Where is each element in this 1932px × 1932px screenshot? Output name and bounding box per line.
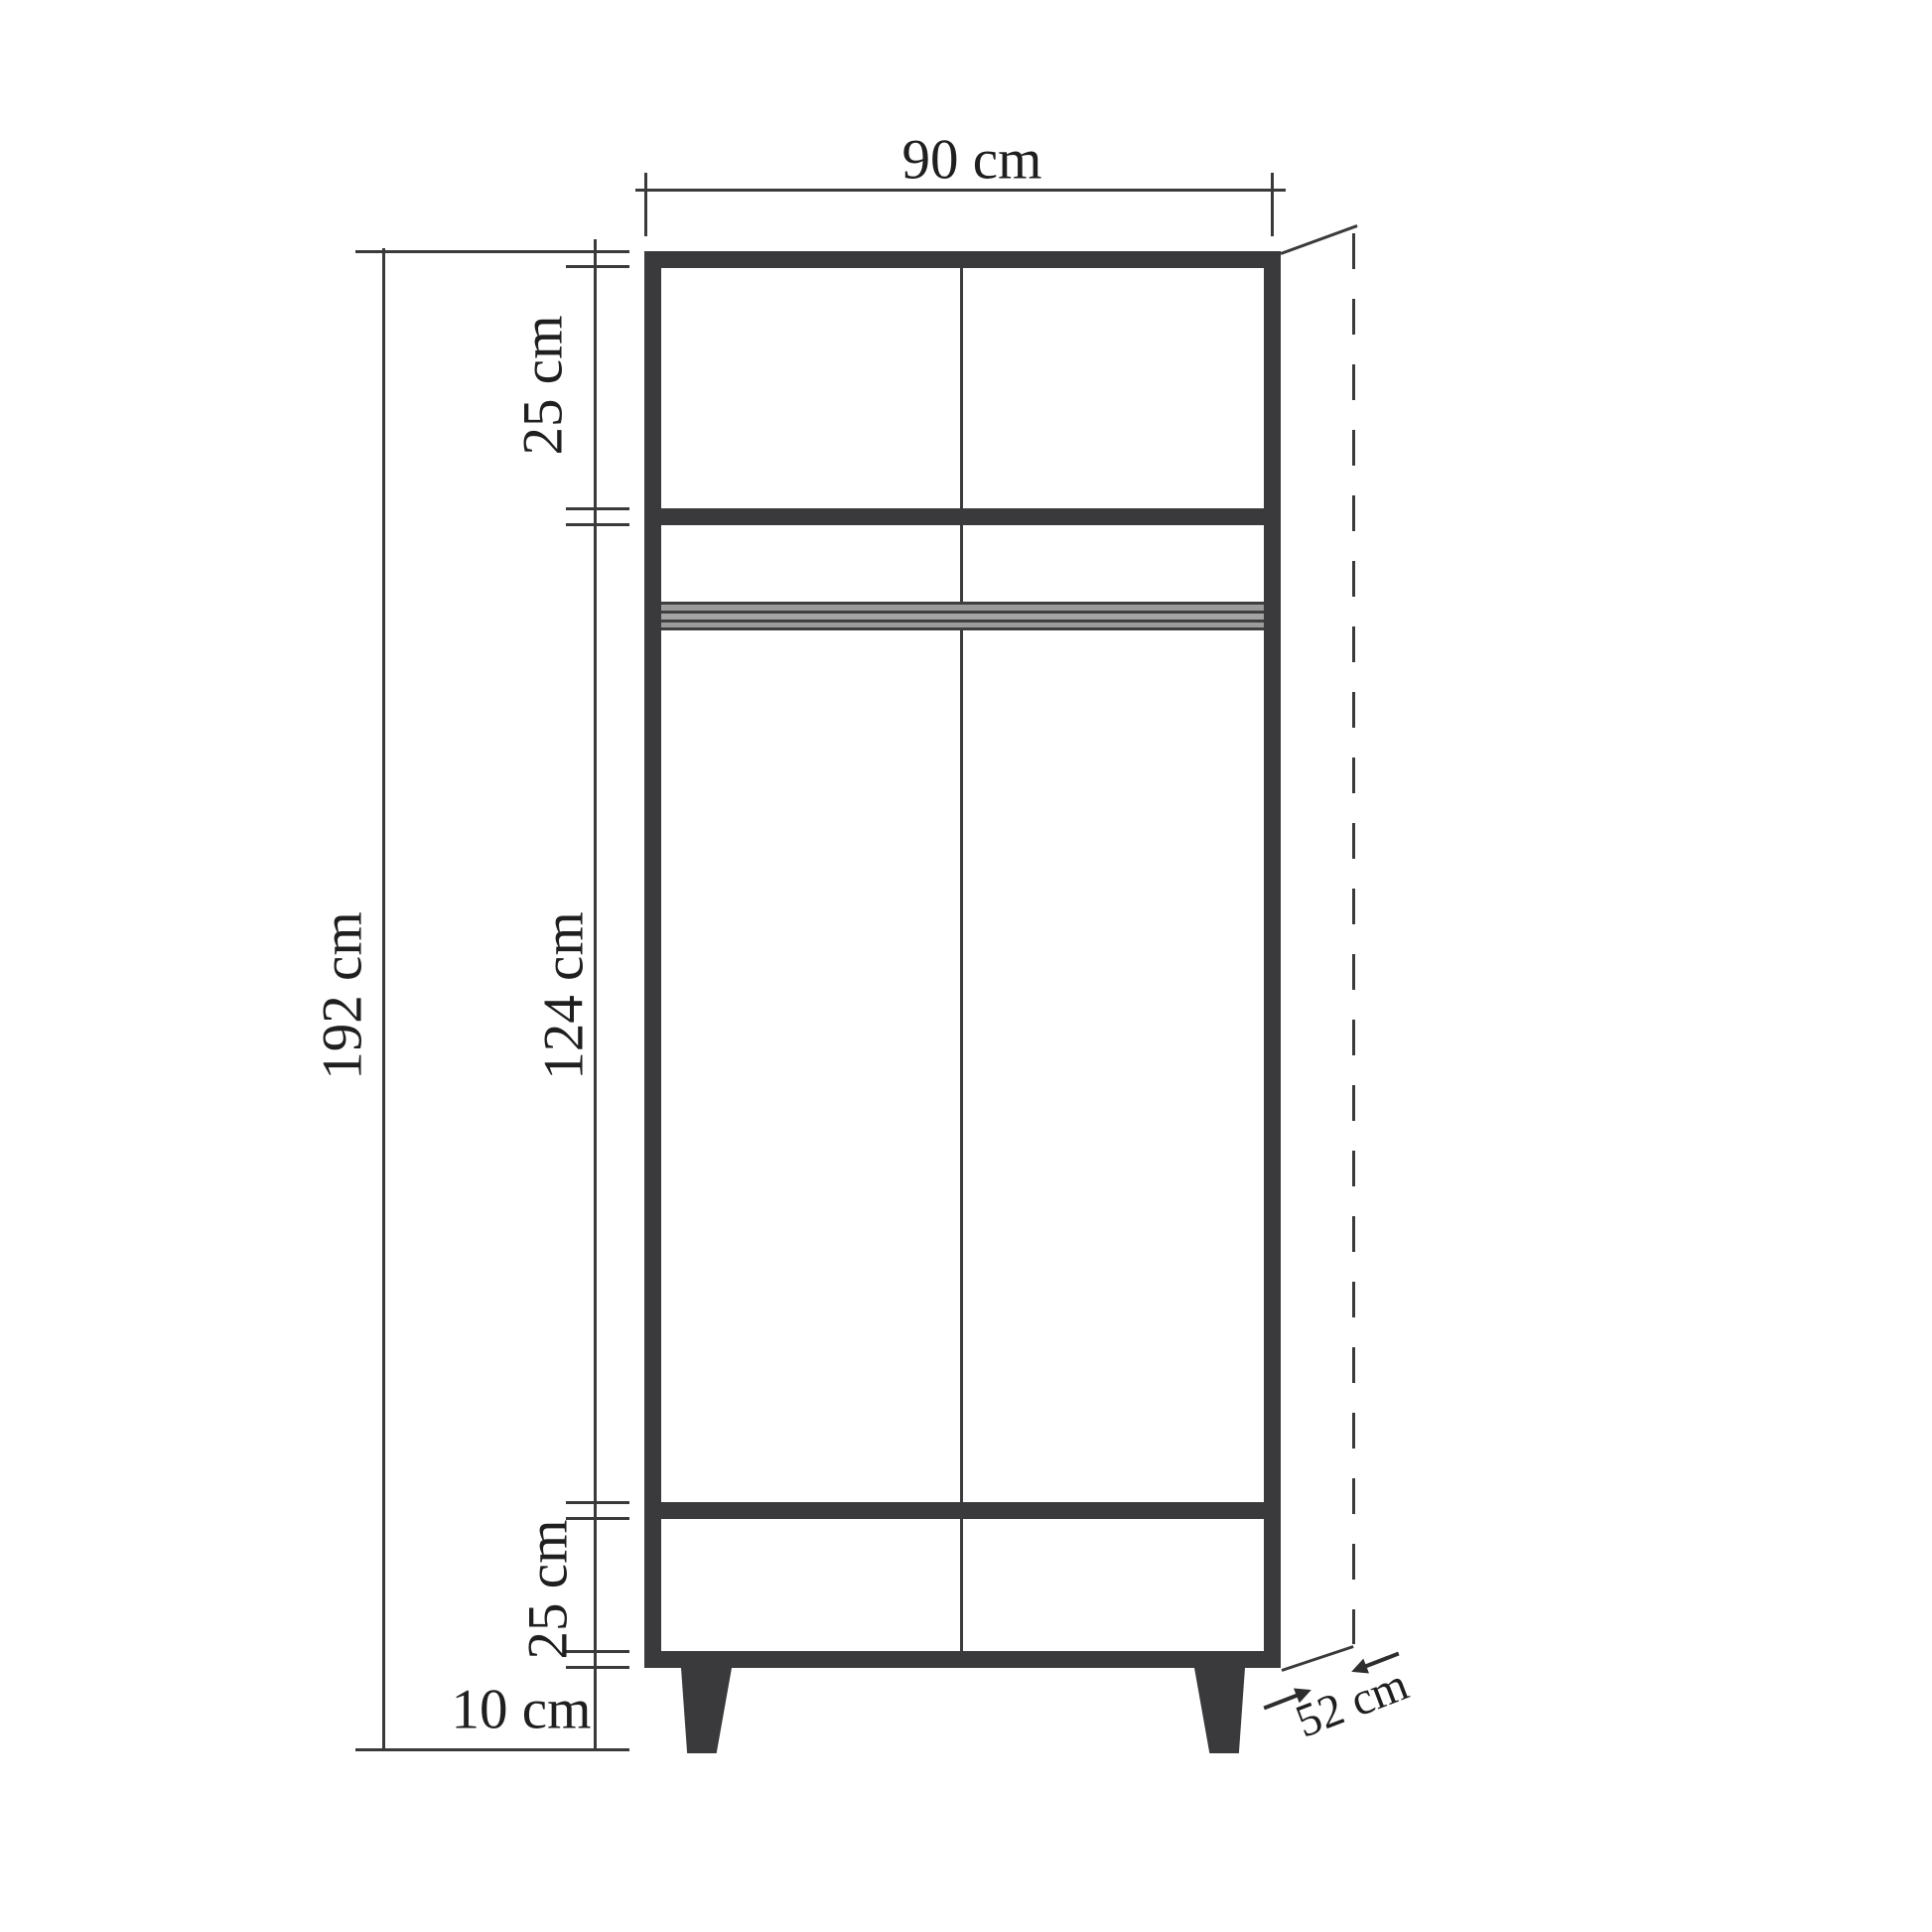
middle-section-dimension-label: 124 cm [536, 911, 593, 1079]
dimension-tick-inner-top [566, 265, 629, 268]
hanging-rail [661, 602, 1264, 630]
total-height-dimension-label: 192 cm [315, 911, 371, 1079]
left-leg [681, 1668, 732, 1753]
dimension-tick-divider2-top [566, 1501, 629, 1504]
dimension-tick-divider1-bottom [566, 523, 629, 526]
width-dimension-tick-left [644, 173, 647, 236]
top-shelf-divider [661, 508, 1264, 525]
depth-edge-top [1280, 224, 1357, 255]
extension-line-floor [355, 1748, 629, 1751]
depth-dashed-line [1352, 233, 1355, 1644]
extension-line-top [355, 250, 629, 253]
width-dimension-tick-right [1271, 173, 1274, 236]
top-section-dimension-label: 25 cm [515, 316, 572, 456]
total-height-dimension-line [382, 248, 385, 1751]
dimension-tick-base-bottom [566, 1666, 629, 1669]
leg-height-dimension-label: 10 cm [452, 1682, 592, 1738]
wardrobe-dimension-diagram: 90 cm 192 cm 25 cm 124 cm 25 cm 10 cm 52… [0, 0, 1932, 1932]
door-seam-line [960, 267, 963, 1651]
right-leg [1194, 1668, 1245, 1753]
bottom-shelf-divider [661, 1502, 1264, 1519]
width-dimension-label: 90 cm [902, 132, 1042, 189]
dimension-tick-divider1-top [566, 507, 629, 510]
depth-edge-bottom [1282, 1645, 1354, 1672]
bottom-section-dimension-label: 25 cm [520, 1520, 577, 1660]
